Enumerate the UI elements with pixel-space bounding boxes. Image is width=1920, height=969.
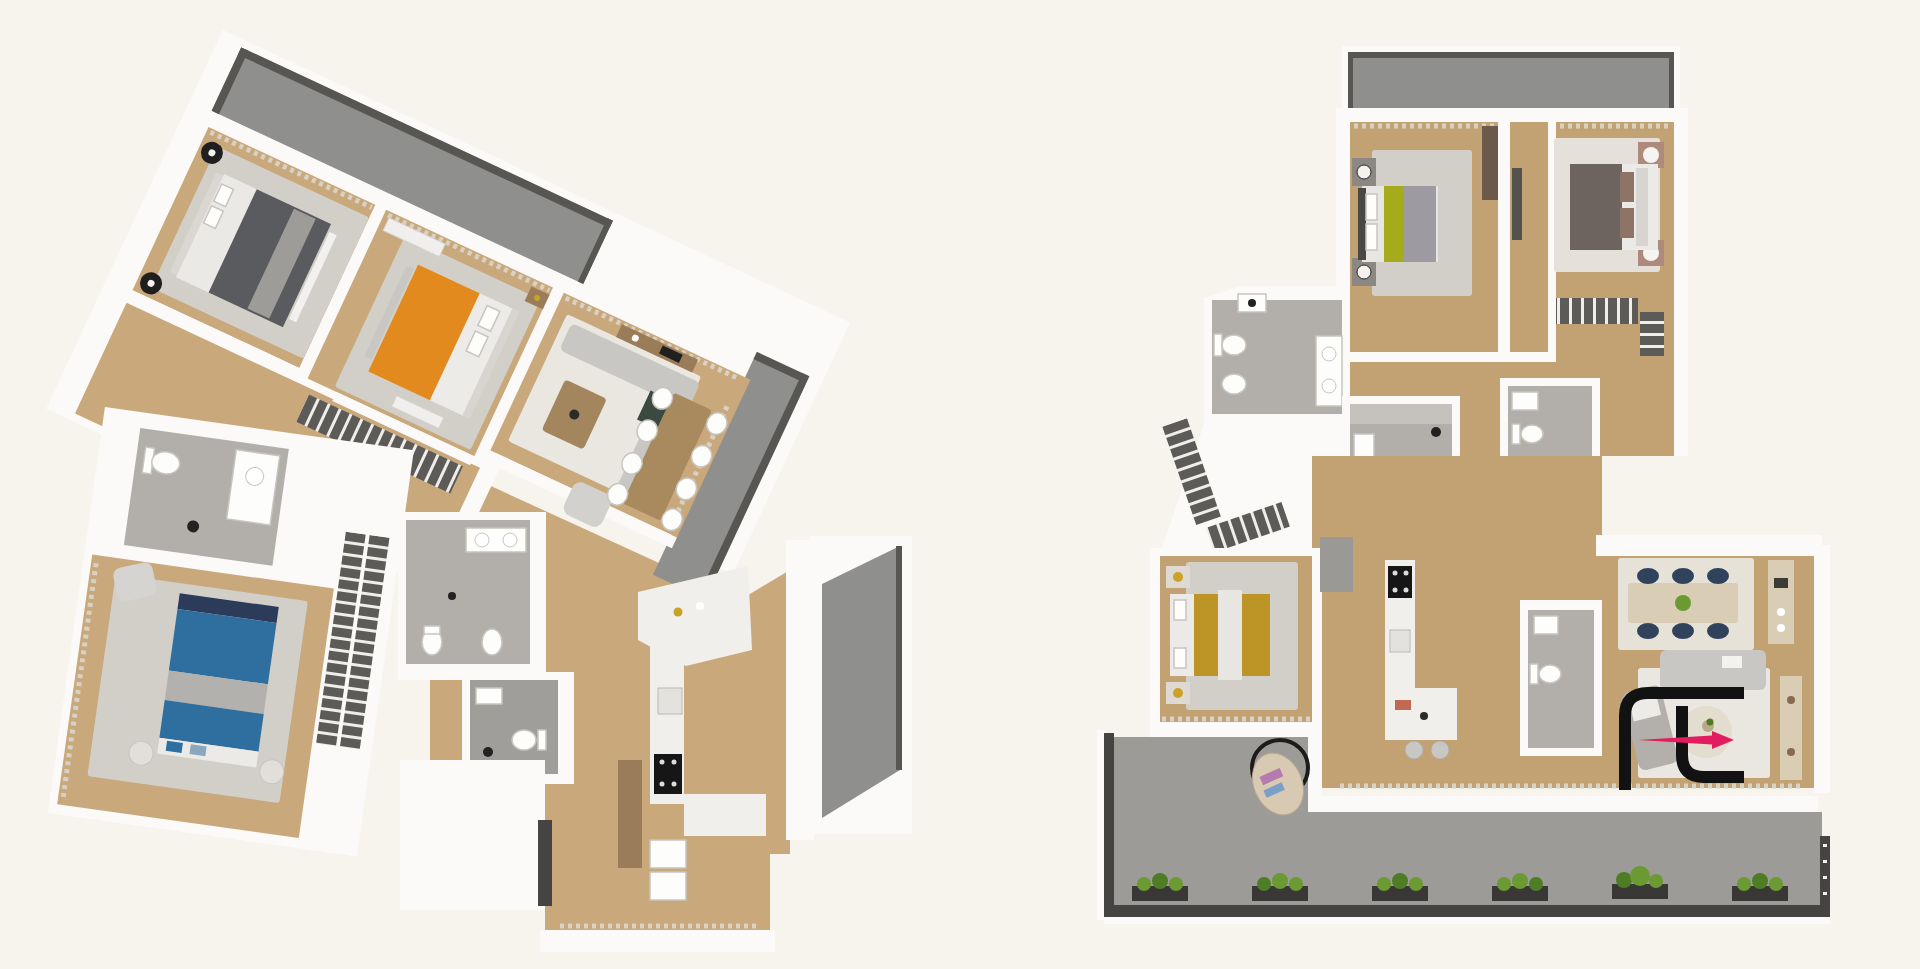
sink-basin: [1322, 379, 1336, 393]
wall: [1350, 352, 1500, 362]
sink-vanity: [1534, 616, 1558, 634]
toilet-tank: [424, 626, 440, 634]
entrance-walls: [400, 760, 545, 910]
balcony-parapet: [1669, 52, 1674, 108]
dining-chair: [1707, 623, 1729, 639]
toilet: [1521, 425, 1543, 443]
small-plant: [1707, 719, 1714, 726]
dining-chair: [1672, 568, 1694, 584]
kitchen-stool: [1405, 741, 1423, 759]
terrace-outer-edge: [1097, 730, 1105, 920]
terrace-dash: [1823, 892, 1827, 895]
appliance-unit: [650, 840, 686, 868]
plant: [1769, 877, 1783, 891]
bathroom-2: [398, 512, 546, 680]
cooktop: [1388, 566, 1412, 598]
wall: [1308, 730, 1322, 812]
cooktop-burner: [660, 760, 665, 765]
floor-plans-canvas: [0, 0, 1920, 969]
plant: [1497, 877, 1511, 891]
toilet-tank: [538, 730, 546, 750]
kitchen-decor: [674, 608, 683, 617]
kitchen-decor: [696, 602, 704, 610]
console-decor: [1774, 578, 1788, 588]
sink-vanity: [1512, 392, 1538, 410]
appliance-unit: [650, 872, 686, 900]
toilet: [512, 730, 536, 750]
terrace-dash: [1823, 860, 1827, 863]
corridor-floor: [1312, 456, 1602, 556]
sink-basin: [475, 533, 489, 547]
toilet-tank: [1512, 424, 1520, 444]
plant: [1137, 877, 1151, 891]
bed-pillow: [1620, 172, 1634, 202]
balcony-parapet: [1348, 52, 1353, 108]
kitchen-cabinet: [1320, 537, 1353, 592]
sofa-pillow: [1722, 656, 1742, 668]
terrace-outer-edge: [1104, 917, 1830, 924]
balcony-parapet: [1348, 52, 1674, 58]
table-lamp: [1173, 688, 1183, 698]
wc-group: [1520, 600, 1602, 756]
bedroom-closet: [1556, 298, 1638, 324]
sink-vanity: [227, 450, 280, 525]
toilet-tank: [1214, 334, 1222, 356]
cooktop-burner: [660, 782, 665, 787]
cooktop-burner: [672, 782, 677, 787]
bed-duvet: [1570, 164, 1622, 250]
plant: [1529, 877, 1543, 891]
console-decor: [1777, 608, 1785, 616]
shower-area: [1350, 404, 1452, 424]
toilet-tank: [1530, 664, 1538, 684]
plant: [1752, 873, 1768, 889]
cooktop-burner: [1393, 588, 1398, 593]
wall: [1312, 796, 1818, 812]
wall: [540, 930, 775, 952]
bed-pillow: [1620, 208, 1634, 238]
cooktop-burner: [1404, 571, 1409, 576]
plant: [1616, 872, 1632, 888]
cooktop-burner: [672, 760, 677, 765]
floor-drain: [483, 747, 493, 757]
dining-chair: [1707, 568, 1729, 584]
bed-blue-group: [57, 553, 334, 838]
plant: [1289, 877, 1303, 891]
kitchen-peninsula: [684, 794, 766, 836]
plant: [1152, 873, 1168, 889]
plant: [1377, 877, 1391, 891]
cooktop-burner: [1393, 571, 1398, 576]
wall: [786, 540, 814, 840]
terrace-dash: [1823, 876, 1827, 879]
table-lamp: [1173, 572, 1183, 582]
plant: [1737, 877, 1751, 891]
plant: [1272, 873, 1288, 889]
bed-headboard: [1358, 188, 1366, 260]
sink-basin: [1322, 347, 1336, 361]
bed-duvet: [1384, 186, 1404, 262]
floor-plans-scene: [0, 0, 1920, 969]
balcony-floor: [1348, 52, 1674, 108]
tall-wardrobe: [1482, 126, 1498, 200]
console-decor: [1777, 624, 1785, 632]
terrace-wall: [1104, 733, 1114, 917]
balcony-parapet: [896, 546, 902, 770]
bed-pillow: [1366, 194, 1377, 220]
table-lamp: [1357, 265, 1371, 279]
dining-chair: [1637, 568, 1659, 584]
kitchen-stool: [1431, 741, 1449, 759]
plant: [1512, 873, 1528, 889]
faucet: [1248, 299, 1256, 307]
console-decor: [1787, 748, 1795, 756]
console-cabinet: [1780, 676, 1802, 780]
plant: [1392, 873, 1408, 889]
left-lower-wing: [48, 407, 414, 856]
bed-pillow: [1366, 224, 1377, 250]
sink-vanity: [476, 688, 502, 704]
terrace-wall: [1104, 905, 1830, 917]
toilet: [1539, 665, 1561, 683]
bedroom-closet: [1640, 312, 1664, 356]
sofa: [1660, 650, 1766, 690]
bed-mustard-group: [1150, 548, 1322, 738]
bed-pillow: [1174, 600, 1186, 620]
sink-basin: [503, 533, 517, 547]
wall: [1814, 545, 1830, 793]
corridor-shelf: [1512, 168, 1522, 240]
table-plant: [1675, 595, 1691, 611]
bathroom-1: [124, 428, 289, 566]
plant: [1649, 874, 1663, 888]
dining-chair: [1637, 623, 1659, 639]
island-decor: [1420, 712, 1428, 720]
ceiling-light: [1431, 427, 1441, 437]
plant: [1409, 877, 1423, 891]
terrace-dash: [1823, 844, 1827, 847]
entry-door-mat: [538, 820, 552, 906]
left-balcony-kitchen: [810, 536, 912, 834]
bed-headboard: [1636, 168, 1648, 246]
wood-bar-table: [618, 760, 642, 868]
wall: [1596, 535, 1822, 556]
bed-pillow: [1174, 648, 1186, 668]
table-lamp: [1643, 147, 1659, 163]
cooktop-burner: [1404, 588, 1409, 593]
console-decor: [1787, 696, 1795, 704]
plant: [1169, 877, 1183, 891]
bidet: [1222, 374, 1246, 394]
bed-throw: [1218, 590, 1242, 680]
floor-drain: [448, 592, 456, 600]
table-lamp: [1357, 165, 1371, 179]
bed-brown-group: [1554, 138, 1664, 356]
cutting-board: [1395, 700, 1411, 710]
bidet: [482, 629, 502, 655]
plant: [1257, 877, 1271, 891]
toilet: [1222, 335, 1246, 355]
dining-chair: [1672, 623, 1694, 639]
kitchen-sink: [1390, 630, 1410, 652]
bed-throw: [1404, 186, 1436, 262]
cooktop: [654, 754, 682, 794]
plant: [1630, 866, 1650, 886]
kitchen-sink: [658, 688, 682, 714]
